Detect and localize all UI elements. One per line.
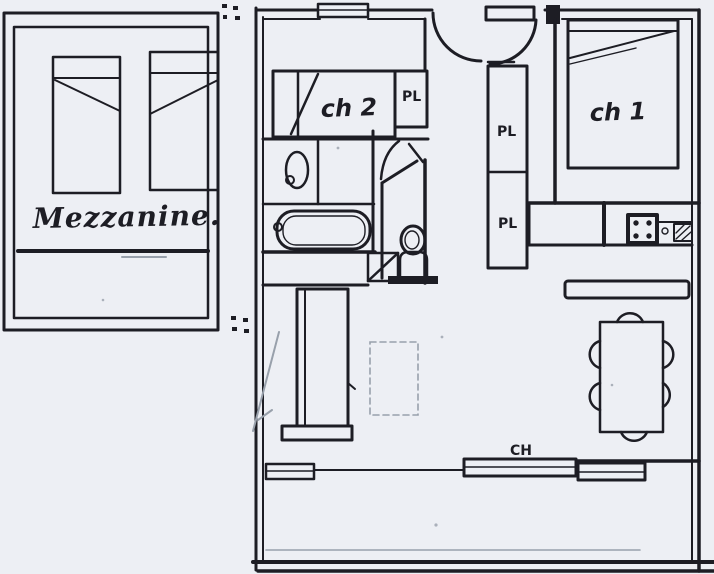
burner [646,233,651,238]
dot [235,16,240,20]
paper-background [0,0,714,574]
dot [231,316,236,320]
speck [441,336,444,339]
floor-plan-drawing: Mezzanine. [0,0,714,574]
speck [611,384,614,387]
bedroom1-label: ch 1 [589,97,646,127]
dot [232,327,237,331]
burner [633,233,638,238]
dot [244,329,249,333]
heating-label: CH [510,443,532,459]
stove-outline [628,215,657,243]
mezzanine-label: Mezzanine. [32,199,221,235]
dot [223,15,227,19]
closet-label: PL [497,124,516,140]
threshold [388,276,438,284]
bedroom2-label: ch 2 [320,93,377,123]
closet-label: PL [402,89,421,105]
burner [633,220,638,225]
closet-label: PL [498,216,517,232]
dot [233,6,238,10]
speck [337,147,340,150]
burner [646,220,651,225]
dot [222,4,227,8]
stove-icon [628,215,657,243]
wall-pier [546,5,560,24]
dot [243,318,248,322]
entry-door [486,7,534,20]
floor-plan-scan: Mezzanine. [0,0,714,574]
speck [434,523,437,526]
speck [102,299,105,302]
